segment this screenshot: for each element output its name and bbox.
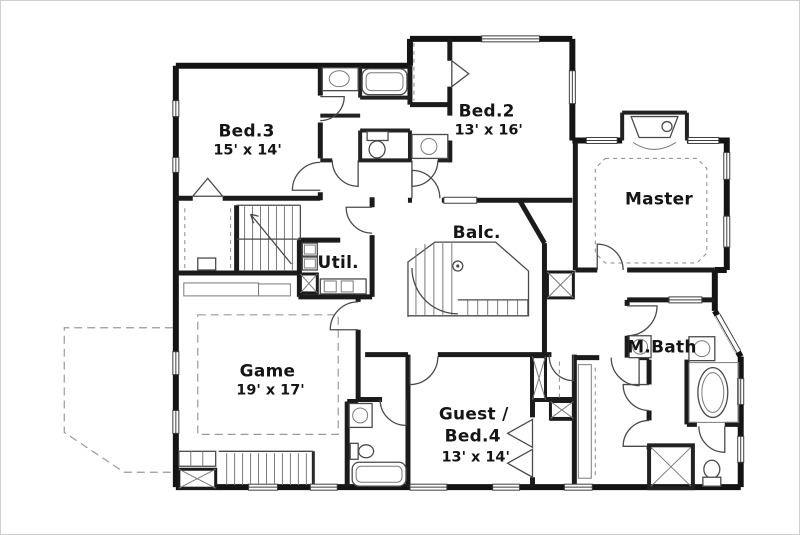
room-labels: Bed.3 15' x 14' Bed.2 13' x 16' Master B…	[213, 101, 696, 466]
label-guest-line1: Guest /	[439, 403, 509, 423]
vanity-sink	[412, 134, 448, 158]
floor-plan-svg: Bed.3 15' x 14' Bed.2 13' x 16' Master B…	[1, 1, 799, 534]
label-master: Master	[625, 188, 693, 208]
lower-stairs	[219, 451, 314, 485]
media-cabinet	[179, 451, 216, 466]
label-guest-line2: Bed.4	[445, 425, 501, 445]
back-stairs	[237, 206, 300, 271]
mbath-toilet	[703, 460, 721, 486]
guest-double-door-b	[508, 449, 533, 477]
built-in-desk	[184, 283, 291, 296]
bathtub	[362, 69, 407, 95]
master-closet-shelving	[578, 365, 591, 479]
label-bed3: Bed.3	[218, 121, 274, 141]
label-balcony: Balc.	[453, 222, 501, 242]
roof-outline-dashed	[64, 328, 173, 472]
guest-tub	[352, 462, 406, 486]
master-tray-ceiling-dashed	[595, 158, 707, 263]
label-mbath: M.Bath	[627, 337, 697, 357]
diagonal-window	[716, 314, 741, 353]
label-bed2: Bed.2	[459, 101, 515, 121]
fireplace	[622, 113, 687, 150]
chase-boxes	[179, 272, 574, 488]
closet-shelf	[198, 258, 216, 270]
curved-stairs-balcony	[408, 242, 529, 317]
guest-sink	[349, 403, 372, 427]
cased-opening	[444, 197, 477, 203]
toilet	[367, 132, 388, 158]
bed2-closet-door-panel	[452, 61, 469, 87]
master-shower	[649, 445, 693, 488]
label-bed2-dims: 13' x 16'	[454, 123, 522, 139]
bed3-closet-door-panel	[193, 178, 223, 196]
guest-toilet	[350, 443, 373, 459]
vanity-sink	[322, 68, 358, 91]
garden-tub	[689, 363, 739, 423]
floor-plan-image: Bed.3 15' x 14' Bed.2 13' x 16' Master B…	[0, 0, 800, 535]
guest-double-door-a	[508, 419, 533, 447]
label-bed3-dims: 15' x 14'	[213, 142, 281, 158]
label-guest-dims: 13' x 14'	[442, 449, 510, 465]
label-utility: Util.	[318, 252, 359, 272]
label-game: Game	[240, 361, 296, 381]
label-game-dims: 19' x 17'	[236, 383, 304, 399]
